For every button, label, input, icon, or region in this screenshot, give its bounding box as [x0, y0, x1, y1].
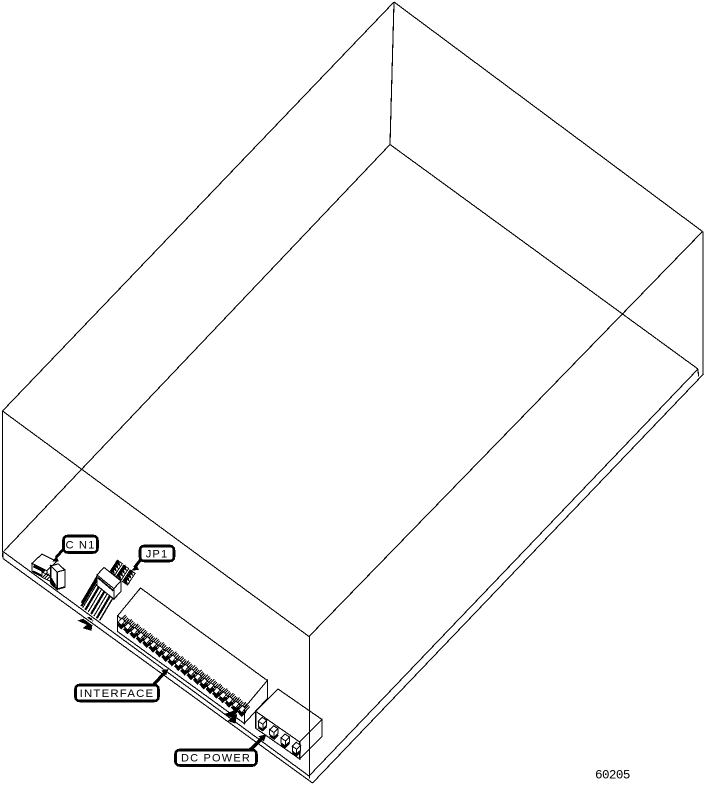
svg-text:C N1: C N1: [66, 539, 96, 551]
svg-text:60205: 60205: [595, 769, 630, 783]
svg-text:JP1: JP1: [146, 549, 169, 561]
svg-text:DC POWER: DC POWER: [181, 753, 251, 765]
svg-text:INTERFACE: INTERFACE: [80, 688, 155, 700]
